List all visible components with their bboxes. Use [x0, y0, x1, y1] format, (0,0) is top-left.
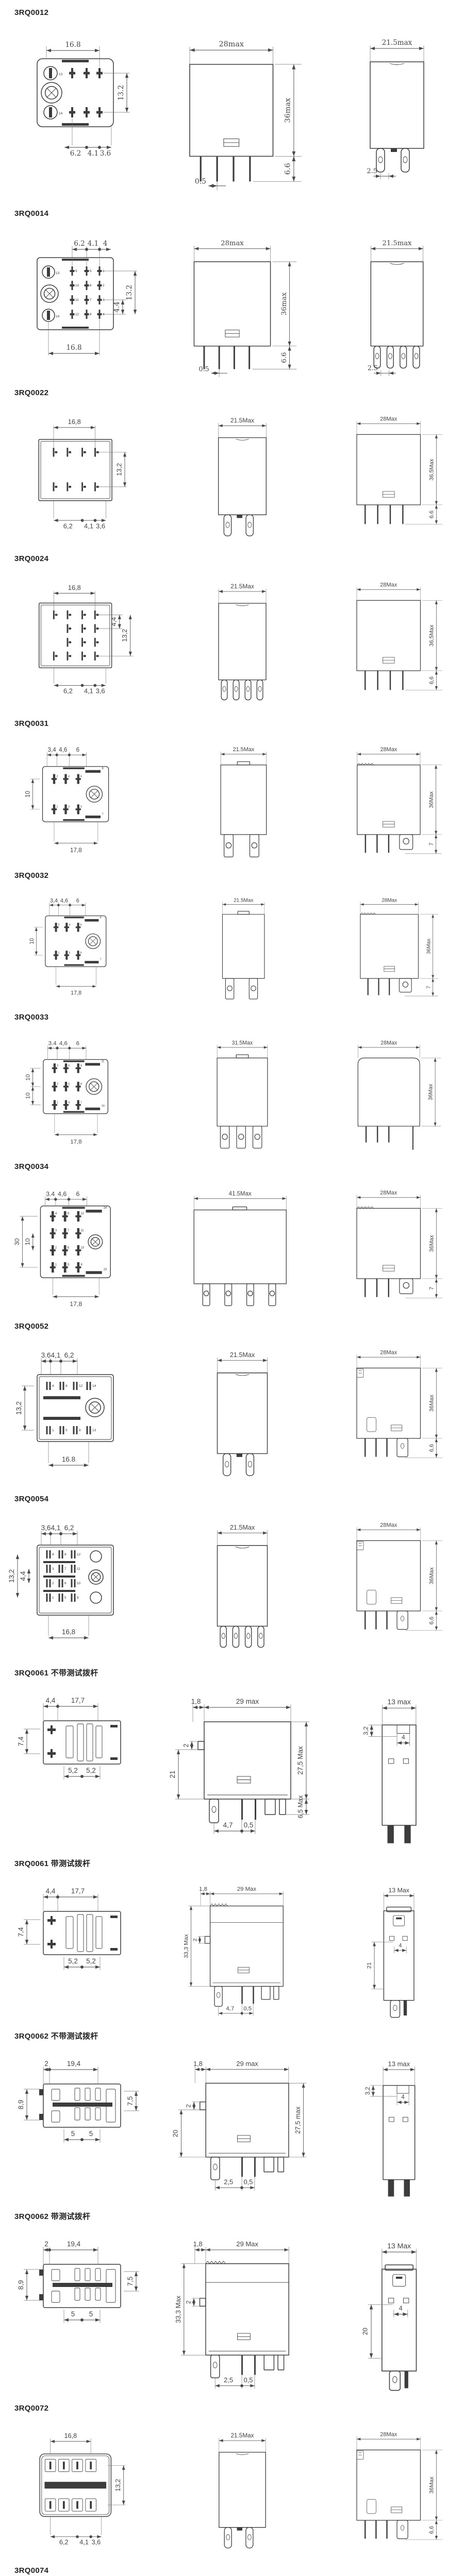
- svg-text:1,8: 1,8: [193, 2060, 203, 2067]
- svg-text:28Max: 28Max: [380, 416, 397, 422]
- svg-text:13 max: 13 max: [387, 1698, 410, 1706]
- svg-text:3.4: 3.4: [46, 1190, 55, 1197]
- svg-text:3.4: 3.4: [48, 1040, 57, 1046]
- svg-text:27,5 max: 27,5 max: [294, 2106, 302, 2134]
- views-row: 4812371126101593,64,16,213,24,416,821.5M…: [0, 1508, 464, 1663]
- svg-text:17,8: 17,8: [70, 1300, 82, 1308]
- technical-drawing-3RQ0034-view2-relayFront-blade4: 41.5Max: [155, 1176, 330, 1313]
- svg-text:1,8: 1,8: [191, 1698, 201, 1705]
- svg-text:36Max: 36Max: [428, 791, 435, 808]
- svg-text:8: 8: [68, 1212, 70, 1215]
- view-slot: 4,417,77,45,25,2: [0, 1681, 155, 1849]
- svg-text:14: 14: [92, 1384, 96, 1388]
- svg-text:3,6: 3,6: [92, 2539, 101, 2546]
- views-row: 4,417,77,45,25,21,829 max22127,5 Max6,5 …: [0, 1681, 464, 1854]
- svg-text:28Max: 28Max: [380, 747, 397, 753]
- svg-text:7,5: 7,5: [126, 2096, 134, 2106]
- svg-text:11: 11: [102, 1060, 105, 1063]
- section-3rq0062: 3RQ0062 不带测试拨杆219,48,97,5551,829 max2202…: [0, 2026, 464, 2207]
- svg-text:6,6: 6,6: [429, 2526, 435, 2534]
- technical-drawing-3RQ0033-view2-relaySide-blade3: 31.5Max: [155, 1026, 330, 1153]
- svg-text:13 Max: 13 Max: [387, 2242, 411, 2250]
- svg-text:2.5: 2.5: [367, 167, 377, 175]
- section-3rq0031: 3RQ0031872461353,44,661017,821.5Max28Max…: [0, 715, 464, 867]
- view-slot: 1,829 Max233,3 Max4,70,5: [155, 1871, 330, 2021]
- view-slot: 21.5Max: [155, 402, 330, 545]
- svg-text:13,2: 13,2: [115, 463, 123, 476]
- view-slot: 28Max36Max6,6: [330, 2417, 464, 2557]
- view-slot: 21.5Max: [155, 1335, 330, 1485]
- svg-text:13: 13: [56, 272, 60, 275]
- svg-text:4: 4: [52, 1384, 54, 1388]
- view-slot: 28Max36Max: [330, 1026, 464, 1153]
- svg-text:1,8: 1,8: [193, 2240, 203, 2248]
- svg-text:4,4: 4,4: [46, 1697, 56, 1704]
- technical-drawing-3RQ0072-view2-relaySide-pin2hole: 21.5Max: [155, 2417, 330, 2557]
- svg-text:21.5Max: 21.5Max: [230, 583, 254, 590]
- svg-text:14: 14: [56, 315, 60, 318]
- svg-text:2,5: 2,5: [224, 2178, 233, 2186]
- svg-text:10: 10: [24, 1238, 31, 1245]
- svg-text:5: 5: [65, 1429, 68, 1432]
- section-3rq0072: 3RQ007216,813,26,24,13,621.5Max28Max36Ma…: [0, 2400, 464, 2562]
- svg-text:2: 2: [52, 1582, 54, 1585]
- view-slot: 95110621173128413146.24.144.413.216.8: [0, 223, 155, 379]
- svg-text:4: 4: [68, 1101, 70, 1104]
- svg-text:4: 4: [68, 775, 70, 778]
- svg-text:8: 8: [80, 1083, 82, 1086]
- section-title: 3RQ0072: [14, 2404, 48, 2413]
- section-title: 3RQ0052: [14, 1322, 48, 1331]
- svg-text:13,2: 13,2: [8, 1569, 15, 1583]
- svg-text:3,4: 3,4: [48, 747, 57, 753]
- svg-text:1: 1: [52, 1429, 54, 1432]
- section-3rq0033: 3RQ003311103692581473.44,66101017,831.5M…: [0, 1009, 464, 1158]
- svg-text:41.5Max: 41.5Max: [229, 1191, 252, 1197]
- svg-text:3: 3: [68, 805, 70, 808]
- section-3rq0062: 3RQ0062 带测试拨杆219,48,97,5551,829 Max233,3…: [0, 2207, 464, 2400]
- view-slot: 872461353,44,661017,8: [0, 733, 155, 862]
- section-title: 3RQ0034: [14, 1162, 48, 1171]
- svg-text:31.5Max: 31.5Max: [232, 1040, 253, 1046]
- technical-drawing-3RQ0054-view3-relayFront-clip: 28Max36Max6,6: [330, 1508, 464, 1658]
- technical-drawing-3RQ0061-view1-miniTop-v61: 4,417,77,45,25,2: [0, 1871, 155, 2021]
- svg-text:9: 9: [80, 1064, 82, 1067]
- svg-text:0.5: 0.5: [199, 365, 209, 372]
- svg-text:11: 11: [75, 298, 79, 302]
- svg-text:4: 4: [52, 1553, 54, 1556]
- view-slot: 28Max36Max6,6: [330, 1335, 464, 1485]
- svg-text:28Max: 28Max: [382, 897, 397, 903]
- svg-text:8,9: 8,9: [17, 2100, 25, 2110]
- svg-text:20: 20: [172, 2130, 179, 2137]
- technical-drawing-3RQ0062-view1-miniTop-v62: 219,48,97,555: [0, 2044, 155, 2201]
- svg-text:2: 2: [44, 2240, 48, 2248]
- svg-text:6: 6: [76, 897, 79, 904]
- svg-text:4: 4: [401, 2094, 405, 2100]
- svg-text:17,8: 17,8: [70, 847, 82, 854]
- views-row: 95110621173128413146.24.144.413.216.828m…: [0, 223, 464, 384]
- svg-text:5,2: 5,2: [86, 1957, 96, 1965]
- svg-text:17,7: 17,7: [71, 1887, 85, 1895]
- svg-text:7: 7: [68, 1229, 70, 1232]
- svg-text:7,4: 7,4: [17, 1927, 25, 1937]
- svg-text:4.4: 4.4: [113, 301, 121, 312]
- svg-text:3,6: 3,6: [96, 522, 105, 530]
- svg-text:21.5max: 21.5max: [383, 240, 412, 247]
- svg-text:4,6: 4,6: [59, 1040, 68, 1046]
- svg-text:3: 3: [69, 952, 70, 955]
- view-slot: 13 Max214: [330, 1871, 464, 2021]
- svg-text:13: 13: [92, 1429, 96, 1432]
- svg-text:1: 1: [56, 805, 58, 808]
- svg-text:1: 1: [55, 1263, 57, 1266]
- technical-drawing-3RQ0061-view2-module29-short: 1,829 max22127,5 Max6,5 Max4,70,5: [155, 1681, 330, 1849]
- view-slot: 1,829 Max233,3 Max2,50,5: [155, 2224, 330, 2395]
- technical-drawing-3RQ0032-view2-relaySide-blade2: 21.5Max: [155, 885, 330, 1004]
- view-slot: 16,813,26,24,13,6: [0, 2417, 155, 2557]
- svg-text:4,4: 4,4: [46, 1887, 56, 1895]
- svg-text:13: 13: [103, 1268, 107, 1271]
- technical-drawing-3RQ0032-view3-relayFront-thin3tab: 28Max36Max7: [330, 885, 464, 1004]
- view-slot: 21.5Max: [155, 1508, 330, 1658]
- svg-text:4,1: 4,1: [51, 1351, 61, 1359]
- svg-text:4,1: 4,1: [79, 2539, 89, 2546]
- svg-text:5,2: 5,2: [68, 1957, 78, 1965]
- svg-text:7: 7: [100, 958, 102, 961]
- svg-text:28Max: 28Max: [380, 1522, 397, 1529]
- view-slot: 28Max36,5Max6.6: [330, 402, 464, 545]
- svg-text:5,2: 5,2: [86, 1767, 96, 1774]
- svg-text:5: 5: [90, 269, 92, 273]
- technical-drawing-3RQ0024-view1-bottomView-pcb14: 16,84,413,26,24,13,6: [0, 568, 155, 710]
- technical-drawing-3RQ0032-view1-bottomView-plug6: 872461353,44,661017,8: [0, 885, 155, 1004]
- section-3rq0061: 3RQ0061 不带测试拨杆4,417,77,45,25,21,829 max2…: [0, 1663, 464, 1854]
- view-slot: 21.5Max: [155, 733, 330, 862]
- svg-text:9: 9: [77, 1596, 79, 1600]
- views-row: 872461353,44,661017,821.5Max28Max36Max7: [0, 885, 464, 1009]
- svg-text:7: 7: [102, 812, 104, 816]
- view-slot: 28max36max6.60.5: [155, 22, 330, 200]
- views-row: 872461353,44,661017,821.5Max28Max36Max7: [0, 733, 464, 867]
- svg-text:6.6: 6.6: [284, 163, 292, 175]
- svg-text:14: 14: [59, 112, 63, 115]
- svg-text:19,4: 19,4: [67, 2060, 81, 2067]
- technical-drawing-3RQ0024-view3-relayFront-thin4: 28Max36,5Max6,6: [330, 568, 464, 710]
- svg-text:4: 4: [399, 2305, 403, 2312]
- svg-text:6,2: 6,2: [64, 1524, 74, 1532]
- technical-drawing-3RQ0062-view1-miniTop-v62: 219,48,97,555: [0, 2224, 155, 2395]
- svg-text:6: 6: [64, 1582, 67, 1585]
- svg-text:4,7: 4,7: [226, 2006, 234, 2012]
- views-row: 481214159133.64,16,213,216.821.5Max28Max…: [0, 1335, 464, 1490]
- svg-text:6.2: 6.2: [74, 240, 85, 248]
- svg-text:7: 7: [80, 1101, 82, 1104]
- svg-text:36Max: 36Max: [429, 1235, 435, 1252]
- section-title: 3RQ0014: [14, 209, 48, 218]
- svg-text:30: 30: [13, 1238, 21, 1245]
- technical-drawing-3RQ0054-view1-socketFront-rows4: 4812371126101593,64,16,213,24,416,8: [0, 1508, 155, 1658]
- svg-text:6,6: 6,6: [429, 1444, 435, 1452]
- svg-text:6,2: 6,2: [64, 1351, 74, 1359]
- section-3rq0054: 3RQ00544812371126101593,64,16,213,24,416…: [0, 1490, 464, 1663]
- section-3rq0014: 3RQ001495110621173128413146.24.144.413.2…: [0, 205, 464, 384]
- svg-text:4,1: 4,1: [84, 522, 93, 530]
- view-slot: 219,48,97,555: [0, 2044, 155, 2201]
- svg-text:4,4: 4,4: [110, 617, 118, 626]
- svg-text:13,2: 13,2: [121, 629, 128, 642]
- svg-text:2: 2: [185, 2300, 192, 2304]
- technical-drawing-3RQ0061-view3-slim13-noclip: 13 max43,2: [330, 1681, 464, 1849]
- svg-text:29 Max: 29 Max: [237, 1886, 257, 1892]
- svg-text:28max: 28max: [221, 240, 244, 247]
- svg-text:16,8: 16,8: [62, 1628, 75, 1636]
- svg-text:29 Max: 29 Max: [236, 2240, 258, 2248]
- svg-text:17,8: 17,8: [70, 1139, 81, 1145]
- svg-text:2: 2: [103, 284, 105, 287]
- svg-text:6,2: 6,2: [59, 2539, 69, 2546]
- svg-text:27,5 Max: 27,5 Max: [296, 1746, 304, 1775]
- technical-drawing-3RQ0062-view3-slim13-noclip: 13 max43,2: [330, 2044, 464, 2201]
- svg-text:8,9: 8,9: [17, 2280, 25, 2290]
- svg-text:3: 3: [52, 1567, 54, 1571]
- section-title: 3RQ0033: [14, 1013, 48, 1022]
- svg-text:10: 10: [29, 938, 35, 944]
- section-title: 3RQ0074: [14, 2566, 48, 2575]
- technical-drawing-3RQ0072-view1-socketFront-screw8: 16,813,26,24,13,6: [0, 2417, 155, 2557]
- svg-text:21.5Max: 21.5Max: [234, 897, 253, 903]
- technical-drawing-3RQ0052-view1-socketFront-rows2: 481214159133.64,16,213,216.8: [0, 1335, 155, 1485]
- views-row: 16,813,26,24,13,621.5Max28Max36Max6,6: [0, 2417, 464, 2562]
- technical-drawing-3RQ0012-view2-relayFront-thin4: 28max36max6.60.5: [155, 22, 330, 200]
- section-3rq0061: 3RQ0061 带测试拨杆4,417,77,45,25,21,829 Max23…: [0, 1854, 464, 2026]
- technical-drawing-3RQ0014-view3-relaySide-pin4hole: 21.5max2.5: [330, 223, 464, 379]
- section-title: 3RQ0062 带测试拨杆: [14, 2211, 90, 2222]
- technical-drawing-3RQ0022-view3-relayFront-thin4: 28Max36,5Max6.6: [330, 402, 464, 545]
- view-slot: 28max36max6.60.5: [155, 223, 330, 379]
- svg-text:0,5: 0,5: [244, 1821, 254, 1829]
- view-slot: 28Max36Max6,6: [330, 1508, 464, 1658]
- svg-text:5: 5: [80, 952, 82, 955]
- technical-drawing-3RQ0022-view2-relaySide-pin2hole: 21.5Max: [155, 402, 330, 545]
- view-slot: 28Max36Max7: [330, 885, 464, 1004]
- svg-text:36max: 36max: [280, 292, 288, 315]
- technical-drawing-3RQ0061-view3-slim13-clip: 13 Max214: [330, 1871, 464, 2021]
- svg-text:4.1: 4.1: [88, 240, 98, 248]
- section-3rq0052: 3RQ0052481214159133.64,16,213,216.821.5M…: [0, 1318, 464, 1490]
- technical-drawing-3RQ0033-view1-bottomView-plug9: 11103692581473.44,66101017,8: [0, 1026, 155, 1153]
- technical-drawing-3RQ0033-view3-relayFront-roundtop: 28Max36Max: [330, 1026, 464, 1153]
- svg-text:5: 5: [89, 2310, 93, 2318]
- svg-text:12: 12: [80, 1212, 84, 1215]
- views-row: 14134812371126101593.44,66301017,841.5Ma…: [0, 1176, 464, 1318]
- svg-text:17,8: 17,8: [71, 990, 81, 996]
- svg-text:17,7: 17,7: [71, 1697, 85, 1704]
- views-row: 16,813,26,24,13,621.5Max28Max36,5Max6.6: [0, 402, 464, 550]
- views-row: 131416.813.26.24.13.628max36max6.60.521.…: [0, 22, 464, 205]
- svg-text:8: 8: [102, 767, 104, 770]
- svg-text:10: 10: [77, 1582, 81, 1585]
- svg-text:21.5Max: 21.5Max: [230, 1351, 255, 1359]
- svg-text:6.6: 6.6: [429, 511, 435, 518]
- svg-text:6,2: 6,2: [63, 687, 73, 695]
- svg-text:2: 2: [57, 1083, 58, 1086]
- svg-text:16,8: 16,8: [64, 2432, 77, 2439]
- svg-text:6,6: 6,6: [429, 676, 435, 684]
- svg-text:36Max: 36Max: [429, 1395, 435, 1412]
- svg-text:4,4: 4,4: [19, 1571, 27, 1581]
- svg-text:11: 11: [80, 1229, 84, 1232]
- svg-text:6,5 Max: 6,5 Max: [297, 1795, 304, 1818]
- section-title: 3RQ0024: [14, 554, 48, 563]
- svg-text:6,6: 6,6: [429, 1617, 435, 1624]
- svg-text:6,2: 6,2: [63, 522, 73, 530]
- svg-text:28Max: 28Max: [380, 1040, 397, 1046]
- section-3rq0032: 3RQ0032872461353,44,661017,821.5Max28Max…: [0, 867, 464, 1009]
- svg-text:36,5Max: 36,5Max: [429, 624, 435, 647]
- svg-text:5: 5: [89, 2130, 93, 2138]
- svg-text:5: 5: [80, 805, 82, 808]
- technical-drawing-3RQ0034-view1-bottomView-plug12: 14134812371126101593.44,66301017,8: [0, 1176, 155, 1313]
- svg-text:16,8: 16,8: [68, 418, 81, 426]
- svg-text:4: 4: [69, 924, 70, 927]
- svg-text:4: 4: [55, 1212, 57, 1215]
- svg-text:3: 3: [103, 298, 105, 302]
- svg-text:9: 9: [79, 1429, 81, 1432]
- svg-text:12: 12: [79, 1384, 83, 1388]
- svg-text:0.5: 0.5: [195, 178, 206, 186]
- svg-text:13: 13: [59, 73, 63, 76]
- svg-text:6: 6: [80, 924, 82, 927]
- technical-drawing-3RQ0012-view3-relaySide-pin2hole: 21.5max2.5: [330, 22, 464, 200]
- view-slot: 1,829 max22127,5 Max6,5 Max4,70,5: [155, 1681, 330, 1849]
- svg-text:28Max: 28Max: [380, 1190, 397, 1196]
- svg-text:4,7: 4,7: [223, 1821, 233, 1829]
- svg-text:13 max: 13 max: [388, 2060, 410, 2067]
- svg-text:14: 14: [103, 1207, 107, 1210]
- svg-text:1: 1: [52, 1596, 54, 1600]
- svg-text:28Max: 28Max: [380, 2432, 397, 2438]
- technical-drawing-3RQ0054-view2-relaySide-pin4hole: 21.5Max: [155, 1508, 330, 1658]
- svg-text:3,6: 3,6: [41, 1524, 51, 1532]
- svg-text:6: 6: [90, 284, 92, 287]
- view-slot: 21.5Max: [155, 568, 330, 710]
- svg-text:9: 9: [80, 1263, 82, 1266]
- svg-text:16.8: 16.8: [62, 1455, 75, 1463]
- technical-drawing-3RQ0024-view2-relaySide-pin4hole: 21.5Max: [155, 568, 330, 710]
- svg-text:4: 4: [399, 1942, 402, 1948]
- view-slot: 13 max43,2: [330, 1681, 464, 1849]
- technical-drawing-3RQ0034-view3-relayFront-thin3tab: 28Max36Max7: [330, 1176, 464, 1313]
- svg-text:3,2: 3,2: [365, 2087, 371, 2095]
- svg-text:6: 6: [76, 747, 80, 753]
- svg-text:16.8: 16.8: [65, 41, 80, 49]
- view-slot: 13 max43,2: [330, 2044, 464, 2201]
- svg-text:3.6: 3.6: [41, 1351, 51, 1359]
- technical-drawing-3RQ0062-view3-slim13-clip: 13 Max204: [330, 2224, 464, 2395]
- view-slot: 1,829 max22027,5 max2,50,5: [155, 2044, 330, 2201]
- svg-text:2: 2: [183, 1743, 190, 1747]
- svg-text:1,8: 1,8: [199, 1886, 207, 1892]
- technical-drawing-3RQ0062-view2-module29-tall: 1,829 Max233,3 Max2,50,5: [155, 2224, 330, 2395]
- svg-text:21: 21: [367, 1962, 373, 1969]
- svg-text:13.2: 13.2: [125, 285, 134, 300]
- views-row: 4,417,77,45,25,21,829 Max233,3 Max4,70,5…: [0, 1871, 464, 2026]
- view-slot: 13 Max204: [330, 2224, 464, 2395]
- svg-text:4: 4: [103, 240, 108, 248]
- section-title: 3RQ0012: [14, 8, 48, 17]
- svg-text:7: 7: [429, 1287, 435, 1290]
- dimension-drawing-sheet: 3RQ0012131416.813.26.24.13.628max36max6.…: [0, 0, 464, 2576]
- svg-text:28Max: 28Max: [380, 1350, 397, 1356]
- svg-text:3,6: 3,6: [96, 687, 105, 695]
- svg-text:11: 11: [77, 1567, 80, 1571]
- views-row: 16,84,413,26,24,13,621.5Max28Max36,5Max6…: [0, 568, 464, 715]
- technical-drawing-3RQ0012-view1-bottomView-socket8: 131416.813.26.24.13.6: [0, 22, 155, 200]
- svg-text:3.6: 3.6: [100, 149, 111, 158]
- technical-drawing-3RQ0052-view2-relaySide-pin2hole: 21.5Max: [155, 1335, 330, 1485]
- svg-text:6: 6: [76, 1190, 79, 1197]
- technical-drawing-3RQ0031-view2-relaySide-blade2: 21.5Max: [155, 733, 330, 862]
- svg-text:1: 1: [57, 1101, 58, 1104]
- technical-drawing-3RQ0022-view1-bottomView-pcb8: 16,813,26,24,13,6: [0, 402, 155, 545]
- svg-text:5: 5: [68, 1263, 70, 1266]
- view-slot: 219,48,97,555: [0, 2224, 155, 2395]
- svg-text:2: 2: [58, 924, 60, 927]
- view-slot: 4812371126101593,64,16,213,24,416,8: [0, 1508, 155, 1658]
- technical-drawing-3RQ0052-view3-relayFront-clip: 28Max36Max6,6: [330, 1335, 464, 1485]
- svg-text:36Max: 36Max: [426, 939, 432, 954]
- svg-text:10: 10: [102, 1105, 105, 1108]
- svg-text:16.8: 16.8: [66, 344, 81, 352]
- svg-text:21.5max: 21.5max: [382, 39, 412, 47]
- view-slot: 21.5Max: [155, 2417, 330, 2557]
- svg-text:4,6: 4,6: [59, 747, 67, 753]
- svg-text:20: 20: [361, 2328, 369, 2335]
- view-slot: 41.5Max: [155, 1176, 330, 1313]
- technical-drawing-3RQ0014-view2-relayFront-thin4: 28max36max6.60.5: [155, 223, 330, 379]
- svg-text:5,2: 5,2: [68, 1767, 78, 1774]
- technical-drawing-3RQ0061-view1-miniTop-v61: 4,417,77,45,25,2: [0, 1681, 155, 1849]
- section-title: 3RQ0061 带测试拨杆: [14, 1858, 90, 1869]
- technical-drawing-3RQ0062-view2-module29-short62: 1,829 max22027,5 max2,50,5: [155, 2044, 330, 2201]
- view-slot: 21.5max2.5: [330, 22, 464, 200]
- svg-text:6: 6: [80, 775, 82, 778]
- svg-text:13.2: 13.2: [117, 85, 125, 100]
- svg-text:8: 8: [65, 1384, 68, 1388]
- svg-text:4,6: 4,6: [58, 1190, 67, 1197]
- section-title: 3RQ0032: [14, 871, 48, 880]
- svg-text:8: 8: [100, 916, 102, 919]
- svg-text:3,2: 3,2: [362, 1726, 370, 1735]
- svg-text:13,2: 13,2: [114, 2479, 122, 2492]
- svg-text:12: 12: [77, 1553, 81, 1556]
- svg-text:6.6: 6.6: [280, 352, 288, 363]
- svg-text:6: 6: [68, 1246, 70, 1249]
- technical-drawing-3RQ0014-view1-bottomView-socket14: 95110621173128413146.24.144.413.216.8: [0, 223, 155, 379]
- svg-text:21.5Max: 21.5Max: [230, 1524, 255, 1531]
- view-slot: 872461353,44,661017,8: [0, 885, 155, 1004]
- svg-text:2: 2: [192, 1938, 198, 1941]
- svg-text:2: 2: [44, 2060, 48, 2067]
- svg-text:33,3 Max: 33,3 Max: [174, 2295, 182, 2323]
- svg-text:36,5Max: 36,5Max: [429, 459, 435, 481]
- svg-text:10: 10: [25, 1093, 31, 1099]
- section-3rq0012: 3RQ0012131416.813.26.24.13.628max36max6.…: [0, 4, 464, 205]
- svg-text:10: 10: [80, 1246, 84, 1249]
- svg-text:1: 1: [103, 269, 105, 273]
- svg-text:4.1: 4.1: [88, 149, 98, 158]
